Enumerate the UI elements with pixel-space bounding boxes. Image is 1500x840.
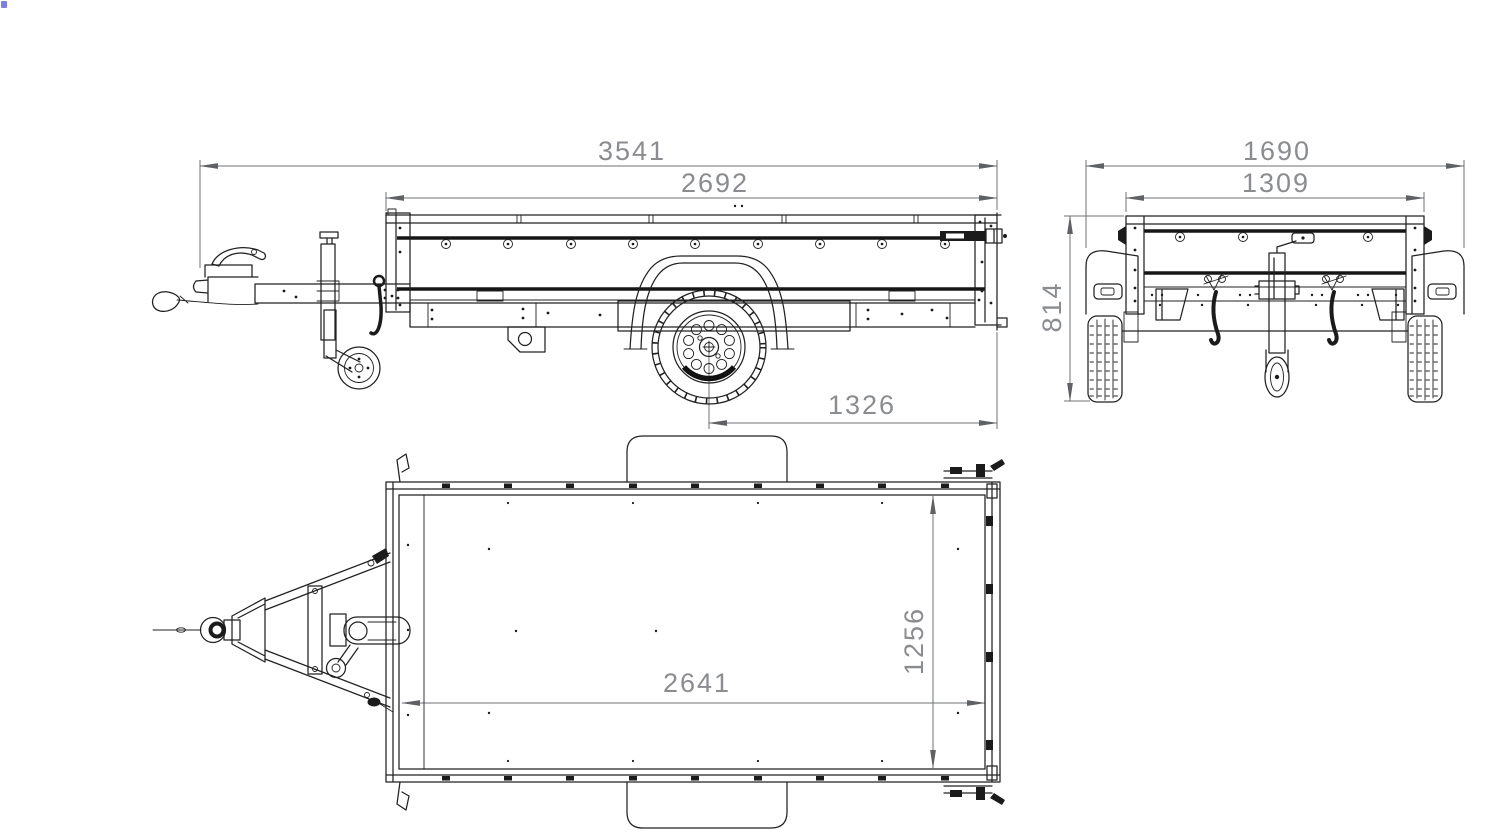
- top-view: 2641 1256: [153, 436, 1005, 828]
- side-bolt-row: [442, 240, 950, 249]
- rear-right-tire: [1408, 316, 1442, 402]
- dim-label-1256: 1256: [899, 607, 929, 675]
- dim-label-1309: 1309: [1242, 168, 1310, 198]
- top-dim-bed-length: 2641: [402, 668, 985, 703]
- rear-jockey-wheel: [1255, 233, 1314, 397]
- top-fender-top: [627, 436, 787, 482]
- side-drawbar: [255, 284, 410, 303]
- top-dim-bed-width: 1256: [899, 496, 933, 768]
- rear-trailer-body: [1086, 216, 1464, 402]
- rear-dim-height: 814: [1037, 216, 1124, 401]
- side-tow-bracket: [508, 327, 545, 352]
- rear-right-fender: [1412, 251, 1464, 314]
- side-dim-overall-length: 3541: [200, 136, 997, 268]
- side-clamp-lever: [371, 276, 384, 334]
- rear-left-tire: [1088, 316, 1122, 402]
- rear-view: 1690 1309 814: [1037, 136, 1464, 402]
- dim-label-2641: 2641: [663, 668, 731, 698]
- side-dim-box-length: 2692: [386, 168, 997, 211]
- dim-label-814: 814: [1037, 281, 1067, 332]
- rear-bolt-dots: [1151, 294, 1399, 306]
- top-arm-latches: [365, 548, 394, 712]
- rear-right-post: [1406, 216, 1432, 314]
- top-jockey-wheel: [327, 614, 411, 678]
- side-jockey-wheel: [317, 232, 380, 389]
- rear-left-post: [1118, 216, 1144, 314]
- top-fender-bottom: [627, 782, 787, 828]
- rear-dim-box-width: 1309: [1126, 168, 1424, 212]
- top-rail-ticks: [442, 484, 949, 781]
- dim-label-1690: 1690: [1243, 136, 1311, 166]
- side-safety-cable: [153, 292, 258, 312]
- trailer-technical-drawing: 3541 2692 1326: [0, 0, 1500, 840]
- dim-label-3541: 3541: [598, 136, 666, 166]
- side-trailer-body: [153, 205, 1007, 404]
- dim-label-1326: 1326: [828, 390, 896, 420]
- top-coupling: [153, 618, 240, 643]
- rear-left-fender: [1086, 251, 1138, 314]
- side-view: 3541 2692 1326: [153, 136, 1007, 429]
- rear-latch-right: [1322, 274, 1346, 344]
- rear-latch-left: [1204, 274, 1228, 344]
- dim-label-2692: 2692: [681, 168, 749, 198]
- side-front-post: [386, 209, 410, 312]
- side-dim-axle-to-rear: 1326: [709, 332, 997, 429]
- top-drawbar: [153, 548, 410, 712]
